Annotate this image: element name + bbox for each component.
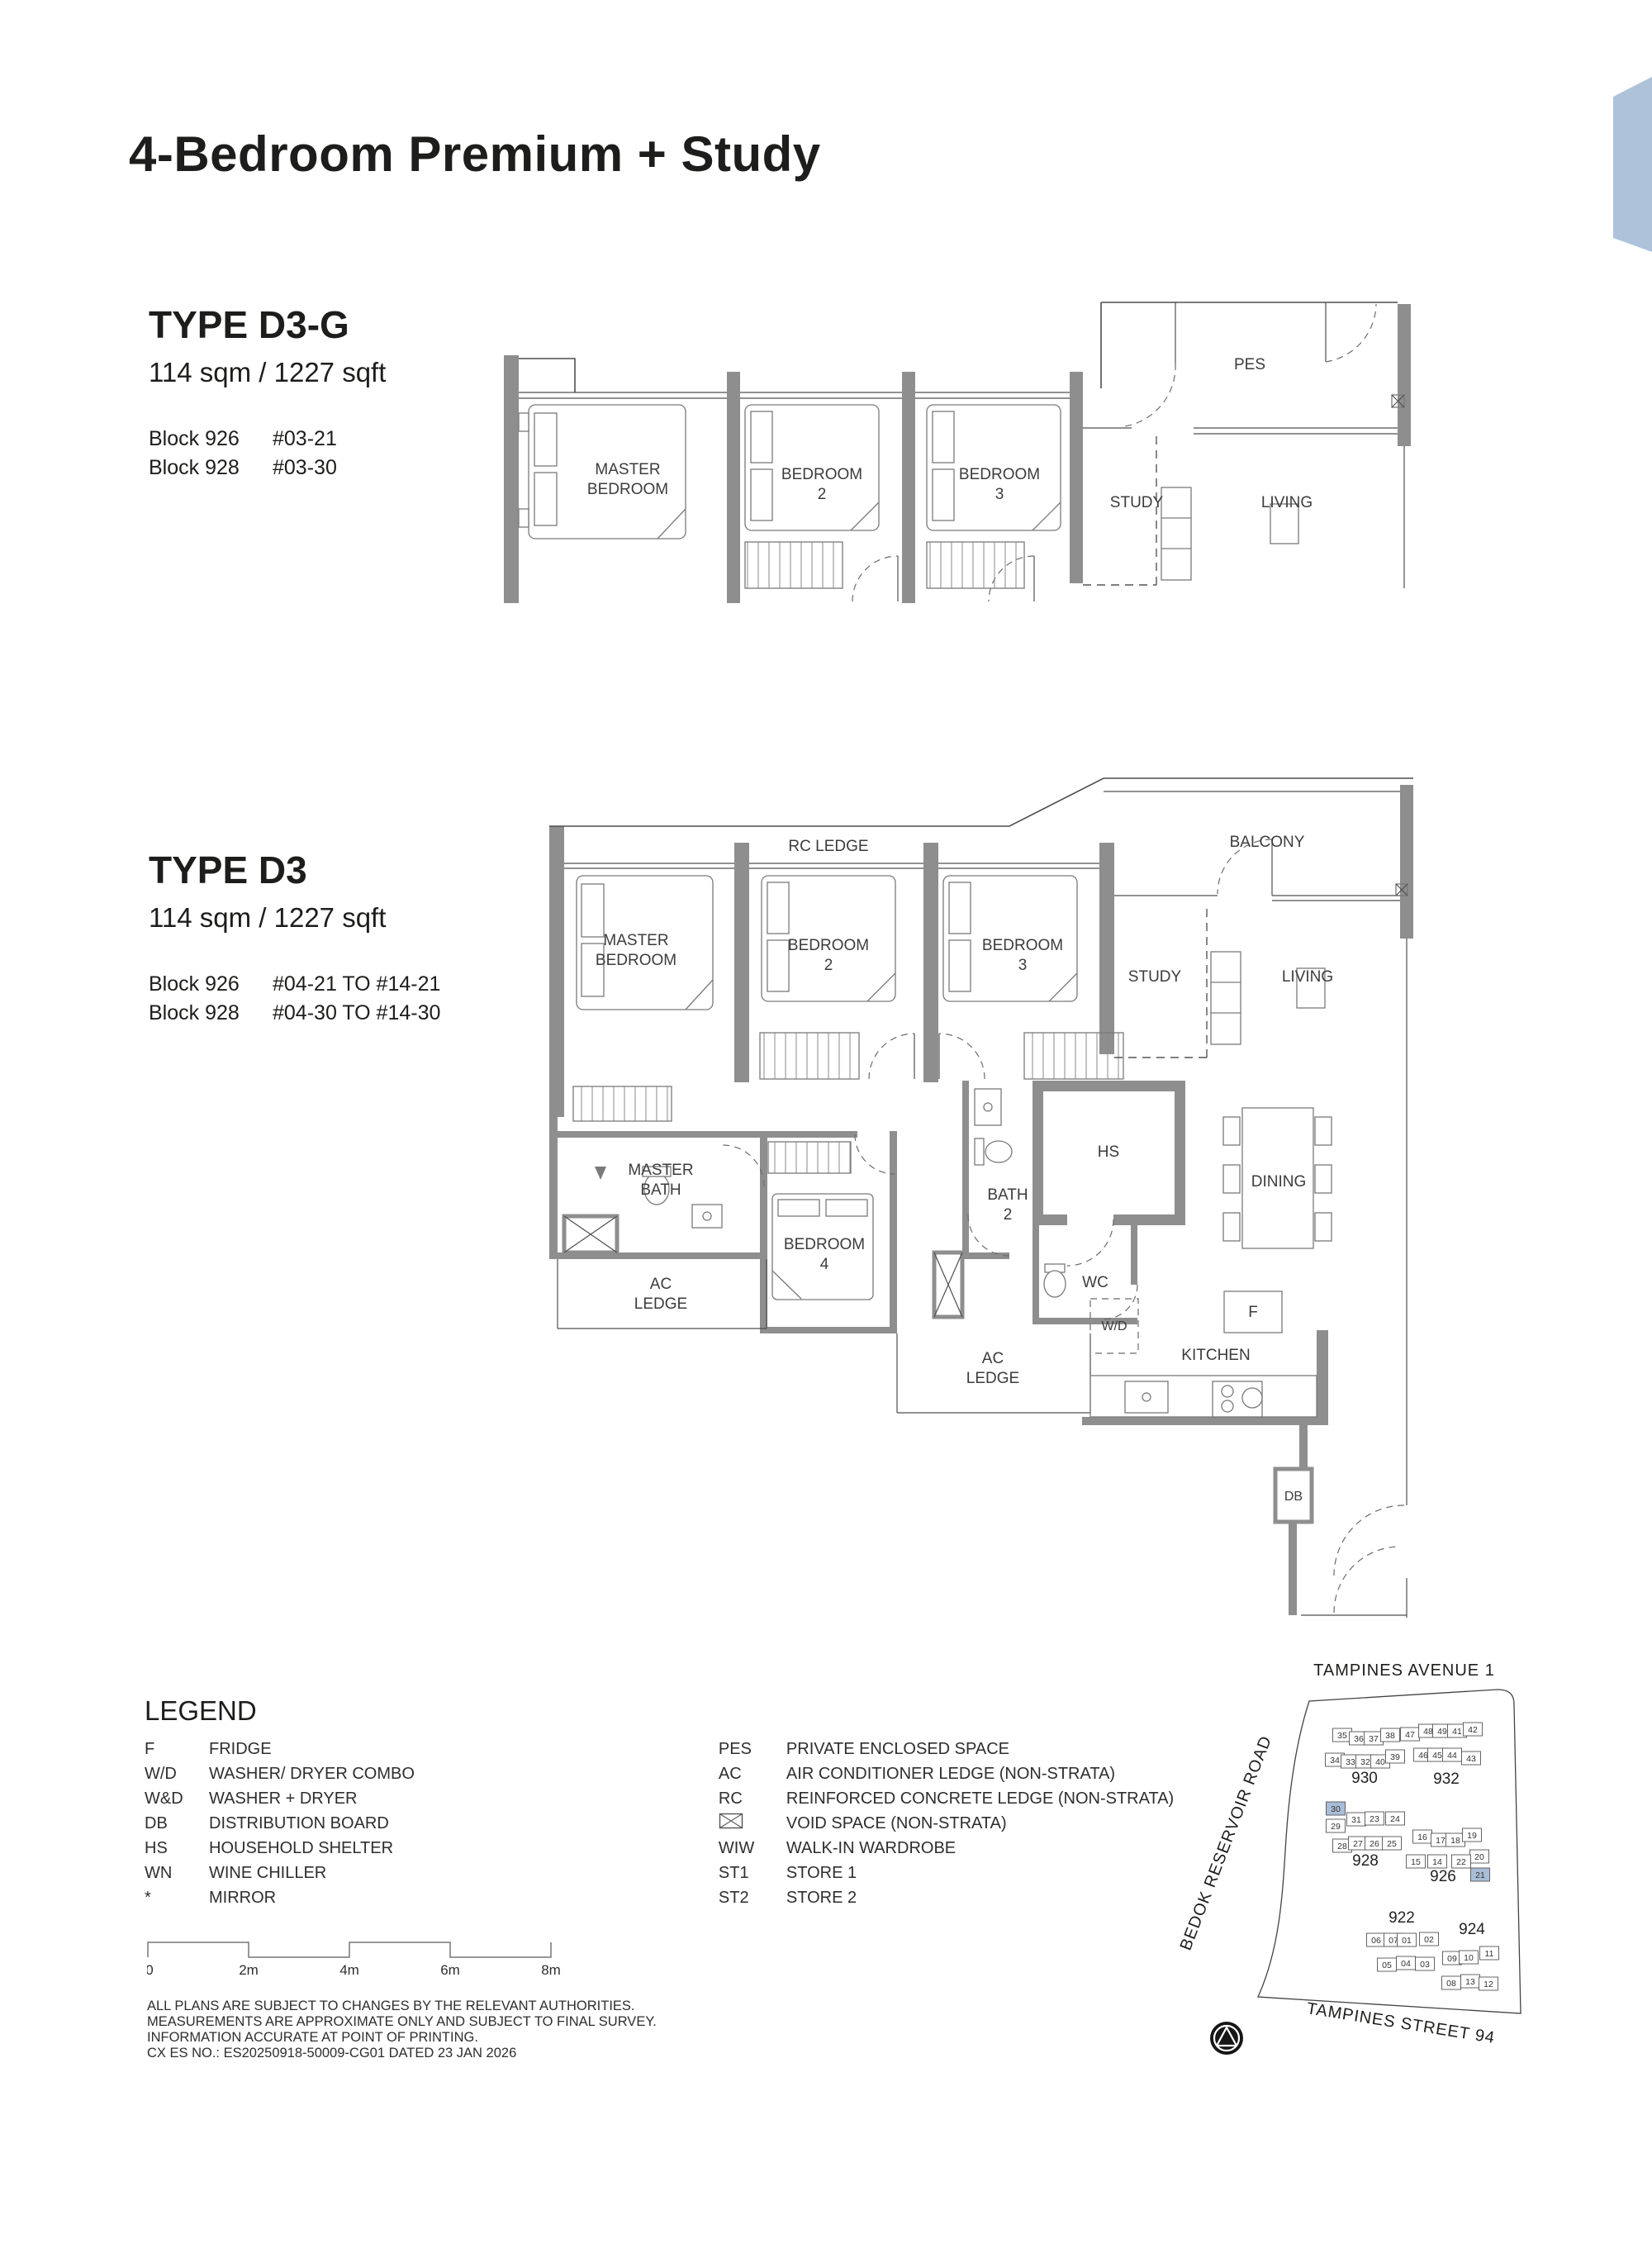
room-label: 4 [820,1256,829,1273]
kitchen-sink [1125,1381,1168,1413]
room-label: LIVING [1282,968,1333,986]
legend-row: HSHOUSEHOLD SHELTER [145,1836,415,1861]
block-row: Block 926#03-21 [149,425,386,454]
site-unit-number: 26 [1370,1839,1379,1849]
block-row: Block 928#04-30 TO #14-30 [149,999,440,1028]
wardrobe [760,1033,859,1079]
legend-abbr: DB [145,1814,209,1833]
legend-desc: WALK-IN WARDROBE [786,1839,956,1858]
road-label-left: BEDOK RESERVOIR ROAD [1177,1733,1276,1953]
site-map-units: 3536373847343332403948494142464544433031… [1326,1723,1499,1990]
legend-title: LEGEND [145,1695,1174,1727]
site-unit-number: 41 [1452,1727,1462,1737]
legend-abbr: PES [719,1740,786,1759]
legend-abbr: * [145,1889,209,1908]
site-unit-number: 35 [1337,1731,1347,1741]
site-unit-number: 16 [1417,1832,1427,1842]
scale-bar: 0 2m 4m 6m 8m [147,1938,560,1980]
site-unit-number: 19 [1467,1831,1477,1841]
legend-column-left: FFRIDGEW/DWASHER/ DRYER COMBOW&DWASHER +… [145,1737,415,1910]
wardrobe [768,1142,851,1173]
legend-column-right: PESPRIVATE ENCLOSED SPACEACAIR CONDITION… [719,1737,1174,1910]
legend-desc: WINE CHILLER [209,1864,326,1883]
site-unit-number: 13 [1465,1977,1475,1987]
scale-tick: 8m [541,1962,560,1978]
site-map: TAMPINES AVENUE 1 BEDOK RESERVOIR ROAD T… [1152,1632,1549,2070]
legend-row: FFRIDGE [145,1737,415,1761]
room-label: BEDROOM [788,937,869,954]
room-label: BATH [640,1181,681,1199]
site-unit-number: 39 [1390,1752,1400,1762]
room-label: W/D [1101,1319,1127,1333]
site-unit-number: 06 [1371,1936,1381,1946]
site-unit-number: 17 [1436,1836,1445,1846]
site-unit-number: 43 [1466,1754,1476,1764]
room-label: 3 [1018,957,1028,974]
block-row: Block 926#04-21 TO #14-21 [149,970,440,999]
site-unit-number: 25 [1387,1839,1397,1849]
legend-desc: STORE 2 [786,1889,857,1908]
corner-accent-shape [1613,77,1652,252]
type-d3-heading: TYPE D3 114 sqm / 1227 sqft Block 926#04… [149,851,440,1028]
room-label: DB [1284,1490,1303,1504]
legend-desc: VOID SPACE (NON-STRATA) [786,1814,1007,1833]
site-unit-number: 27 [1353,1839,1363,1849]
room-label: BEDROOM [587,481,668,498]
legend-abbr: W/D [145,1765,209,1784]
site-unit-number: 02 [1424,1935,1434,1945]
room-label: BEDROOM [596,952,676,969]
site-unit-number: 40 [1375,1757,1385,1767]
block-unit: #04-21 TO #14-21 [273,972,440,996]
legend-desc: STORE 1 [786,1864,857,1883]
room-label: LIVING [1261,494,1313,511]
type-d3-name: TYPE D3 [149,851,440,889]
room-label: HS [1098,1143,1119,1161]
site-unit-number: 21 [1475,1870,1485,1880]
site-unit-number: 03 [1420,1960,1430,1970]
disclaimer: ALL PLANS ARE SUBJECT TO CHANGES BY THE … [147,1999,657,2061]
type-d3g-blocks: Block 926#03-21 Block 928#03-30 [149,425,386,482]
site-unit-number: 33 [1346,1757,1355,1767]
site-block-label: 932 [1433,1771,1460,1788]
room-label: F [1248,1304,1258,1321]
legend-row: W&DWASHER + DRYER [145,1786,415,1811]
room-label: 2 [824,957,833,974]
site-unit-number: 04 [1401,1959,1411,1969]
site-unit-number: 20 [1474,1852,1484,1862]
legend-row: ST1STORE 1 [719,1861,1174,1885]
room-label: LEDGE [966,1370,1019,1387]
disclaimer-line: CX ES NO.: ES20250918-50009-CG01 DATED 2… [147,2046,657,2061]
room-label: 3 [995,486,1004,503]
north-compass-icon [1210,2022,1243,2055]
site-unit-number: 28 [1337,1842,1347,1851]
site-unit-number: 44 [1447,1751,1457,1761]
shower-head [595,1167,606,1180]
site-unit-number: 01 [1402,1936,1412,1946]
site-unit-number: 24 [1390,1814,1400,1824]
legend-row: PESPRIVATE ENCLOSED SPACE [719,1737,1174,1761]
block-unit: #04-30 TO #14-30 [273,1001,440,1024]
room-label: BEDROOM [959,466,1040,483]
legend-desc: WASHER + DRYER [209,1790,357,1809]
room-label: MASTER [628,1162,693,1179]
site-unit-number: 46 [1418,1751,1428,1761]
legend-abbr: F [145,1740,209,1759]
legend-abbr: ST2 [719,1889,786,1908]
room-label: 2 [1004,1206,1013,1224]
block-name: Block 928 [149,454,273,482]
site-unit-number: 11 [1485,1949,1494,1959]
room-label: BEDROOM [781,466,862,483]
room-label: BEDROOM [784,1236,865,1253]
sofa [1211,952,1241,1044]
legend-row: DBDISTRIBUTION BOARD [145,1811,415,1836]
legend-desc: HOUSEHOLD SHELTER [209,1839,393,1858]
legend-desc: FRIDGE [209,1740,272,1759]
wardrobe [1024,1033,1123,1079]
legend-row: RCREINFORCED CONCRETE LEDGE (NON-STRATA) [719,1786,1174,1811]
legend-row: W/DWASHER/ DRYER COMBO [145,1761,415,1786]
legend-abbr: HS [145,1839,209,1858]
site-unit-number: 09 [1447,1954,1457,1964]
room-label: BEDROOM [982,937,1063,954]
basin [692,1205,722,1228]
site-block-label: 926 [1430,1868,1456,1885]
site-unit-number: 30 [1331,1804,1341,1814]
void-space-icon [719,1813,786,1834]
legend-desc: PRIVATE ENCLOSED SPACE [786,1740,1009,1759]
legend-abbr: ST1 [719,1864,786,1883]
page-title: 4-Bedroom Premium + Study [129,126,821,183]
legend-abbr: W&D [145,1790,209,1809]
road-label-top: TAMPINES AVENUE 1 [1313,1661,1495,1680]
site-unit-number: 15 [1411,1857,1421,1867]
site-unit-number: 36 [1354,1734,1364,1744]
legend-desc: REINFORCED CONCRETE LEDGE (NON-STRATA) [786,1790,1174,1809]
legend-row: WNWINE CHILLER [145,1861,415,1885]
site-unit-number: 08 [1446,1979,1456,1989]
legend-desc: DISTRIBUTION BOARD [209,1814,389,1833]
site-unit-number: 22 [1456,1857,1466,1867]
type-d3g-area: 114 sqm / 1227 sqft [149,357,386,388]
site-unit-number: 10 [1464,1953,1474,1963]
site-unit-number: 29 [1331,1822,1341,1832]
basin [975,1089,1001,1125]
site-unit-number: 12 [1483,1980,1493,1989]
room-label: LEDGE [634,1295,687,1313]
block-name: Block 926 [149,970,273,999]
site-block-label: 924 [1459,1921,1485,1938]
legend-abbr: RC [719,1790,786,1809]
room-label: AC [650,1276,672,1293]
site-unit-number: 23 [1370,1814,1379,1824]
block-name: Block 926 [149,425,273,454]
wardrobe [745,542,843,588]
room-label: MASTER [603,932,668,949]
room-label: BALCONY [1230,834,1305,851]
room-label: PES [1234,356,1265,373]
furniture [564,876,1332,1417]
disclaimer-line: INFORMATION ACCURATE AT POINT OF PRINTIN… [147,2030,657,2046]
room-label: AC [982,1350,1004,1367]
site-block-label: 928 [1352,1852,1379,1870]
room-label: MASTER [595,461,660,478]
site-unit-number: 37 [1369,1734,1379,1744]
type-d3-blocks: Block 926#04-21 TO #14-21 Block 928#04-3… [149,970,440,1028]
site-unit-number: 32 [1360,1757,1370,1767]
floorplan-type-d3g: MASTER BEDROOM BEDROOM 2 BEDROOM 3 STUDY… [496,289,1421,603]
legend-abbr: WN [145,1864,209,1883]
type-d3-area: 114 sqm / 1227 sqft [149,902,440,934]
block-unit: #03-30 [273,456,337,479]
room-label: 2 [818,486,827,503]
site-unit-number: 42 [1468,1725,1478,1735]
scale-tick: 6m [440,1962,460,1978]
room-label: DINING [1251,1173,1307,1191]
block-name: Block 928 [149,999,273,1028]
site-unit-number: 48 [1423,1727,1433,1737]
wardrobe [573,1086,672,1121]
floorplan-type-d3: RC LEDGE BALCONY MASTER BEDROOM BEDROOM … [512,760,1437,1636]
site-unit-number: 49 [1437,1727,1447,1737]
disclaimer-line: MEASUREMENTS ARE APPROXIMATE ONLY AND SU… [147,2014,657,2030]
site-unit-number: 38 [1385,1731,1395,1741]
legend-desc: MIRROR [209,1889,276,1908]
hob [1213,1381,1262,1417]
legend-row: *MIRROR [145,1885,415,1910]
legend-row: ST2STORE 2 [719,1885,1174,1910]
room-label: KITCHEN [1181,1347,1250,1364]
site-unit-number: 05 [1382,1961,1392,1970]
site-unit-number: 34 [1330,1756,1340,1766]
site-unit-number: 31 [1351,1815,1361,1825]
room-label: WC [1082,1274,1108,1291]
type-d3g-heading: TYPE D3-G 114 sqm / 1227 sqft Block 926#… [149,306,386,482]
scale-tick: 4m [339,1962,359,1978]
site-unit-number: 18 [1450,1836,1460,1846]
disclaimer-line: ALL PLANS ARE SUBJECT TO CHANGES BY THE … [147,1999,657,2014]
site-map-blocks: 930932928926922924 [1351,1770,1485,1938]
site-block-label: 922 [1389,1909,1415,1927]
kitchen-counter [1090,1376,1317,1417]
scale-tick: 2m [239,1962,259,1978]
toilet [985,1141,1012,1162]
site-block-label: 930 [1351,1770,1378,1787]
scale-tick: 0 [147,1962,154,1978]
type-d3g-name: TYPE D3-G [149,306,386,344]
floorplan-sheet: 4-Bedroom Premium + Study TYPE D3-G 114 … [0,0,1652,2253]
legend: LEGEND FFRIDGEW/DWASHER/ DRYER COMBOW&DW… [145,1695,1174,1910]
block-unit: #03-21 [273,427,337,450]
legend-desc: AIR CONDITIONER LEDGE (NON-STRATA) [786,1765,1115,1784]
site-unit-number: 14 [1432,1857,1442,1867]
legend-abbr: WIW [719,1839,786,1858]
room-label: STUDY [1110,494,1164,511]
legend-row: VOID SPACE (NON-STRATA) [719,1811,1174,1836]
site-unit-number: 45 [1432,1751,1442,1761]
legend-desc: WASHER/ DRYER COMBO [209,1765,415,1784]
legend-abbr: AC [719,1765,786,1784]
wardrobe [927,542,1024,588]
room-label: BATH [987,1186,1028,1204]
road-label-bottom: TAMPINES STREET 94 [1305,1999,1496,2047]
room-label: RC LEDGE [788,838,868,855]
legend-row: ACAIR CONDITIONER LEDGE (NON-STRATA) [719,1761,1174,1786]
room-label: STUDY [1128,968,1182,986]
toilet [1044,1271,1066,1297]
block-row: Block 928#03-30 [149,454,386,482]
sofa [1161,487,1191,580]
site-unit-number: 47 [1405,1730,1415,1740]
legend-row: WIWWALK-IN WARDROBE [719,1836,1174,1861]
